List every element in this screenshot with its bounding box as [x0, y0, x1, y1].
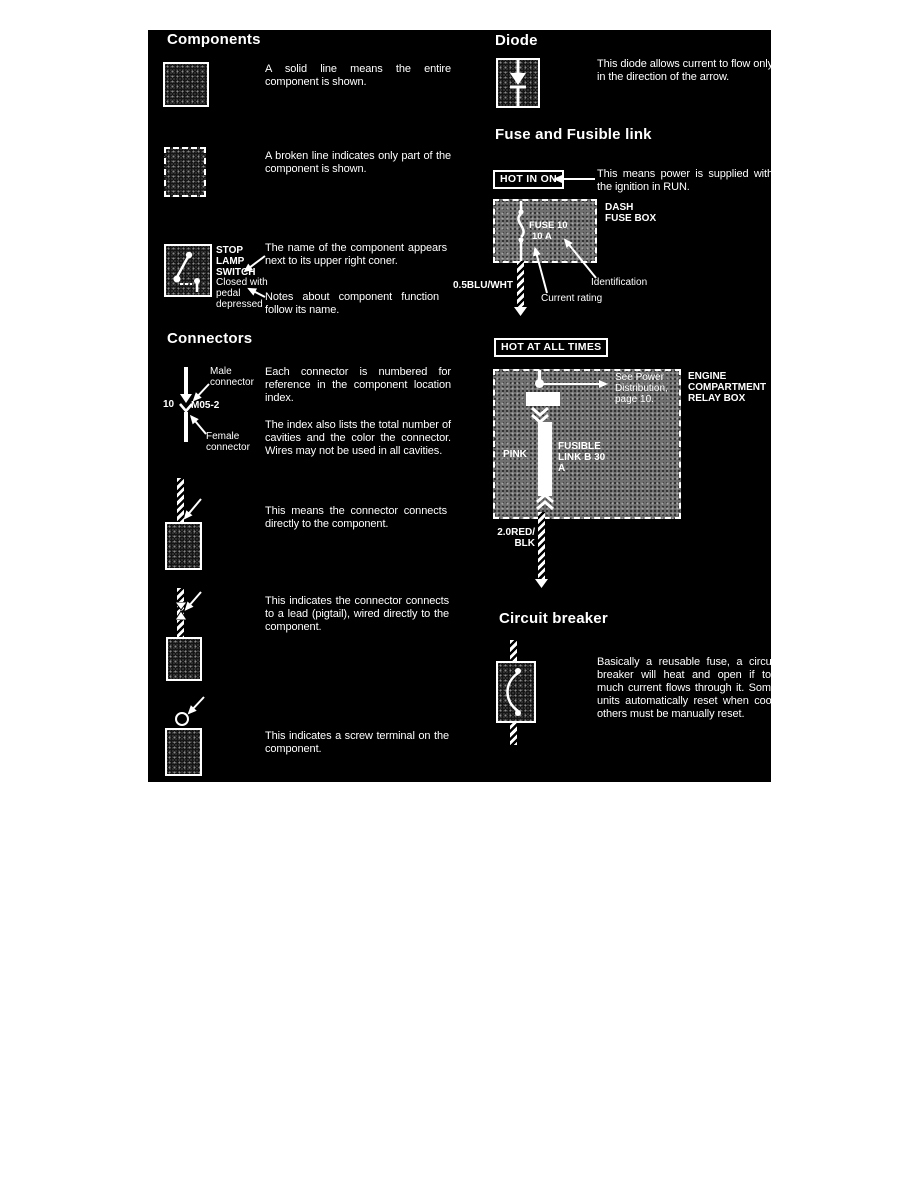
pink-label: PINK: [503, 449, 527, 460]
see-power-arrow: [542, 380, 606, 388]
fusible-link-label: FUSIBLE LINK B 30 A: [558, 441, 610, 474]
circuit-breaker-icon: [498, 663, 534, 721]
diode-heading: Diode: [495, 32, 538, 49]
fuse-rating-label: 10 A: [532, 231, 552, 242]
connector-index-text: The index also lists the total number of…: [265, 419, 451, 458]
wire-color-line1: 2.0RED/: [497, 527, 535, 538]
diode-text: This diode allows current to flow only i…: [597, 58, 771, 84]
switch-icon: [166, 246, 210, 295]
component-box: [165, 728, 202, 776]
circuit-breaker-box: [496, 661, 536, 723]
screw-terminal-icon: [175, 712, 189, 726]
hot-in-on-text: This means power is supplied with the ig…: [597, 168, 771, 194]
diode-box: [496, 58, 540, 108]
hatched-wire: [538, 512, 545, 580]
cavity-count-label: 10: [163, 399, 174, 410]
wire-end-arrow: [535, 579, 548, 588]
wiring-legend-page: Components A solid line means the entire…: [148, 30, 771, 782]
dash-fuse-box-label: DASH FUSE BOX: [605, 202, 657, 224]
hatched-wire: [517, 261, 524, 308]
diode-icon: [498, 60, 538, 106]
wire-color-line2: BLK: [514, 538, 535, 549]
circuit-breaker-heading: Circuit breaker: [499, 610, 608, 627]
fusible-link-bar: [538, 422, 552, 496]
female-connector-label: Female connector: [206, 431, 270, 453]
solid-line-text: A solid line means the entire component …: [265, 63, 451, 89]
hot-in-on-arrow: [555, 175, 595, 183]
fuse-wire-color-label: 0.5BLU/WHT: [453, 280, 513, 291]
connector-pigtail-text: This indicates the connector connects to…: [265, 595, 449, 634]
connectors-heading: Connectors: [167, 330, 252, 347]
screw-pointer-arrow: [186, 694, 207, 716]
screw-terminal-text: This indicates a screw terminal on the c…: [265, 730, 449, 756]
wire-end-arrow: [514, 307, 527, 316]
fuse-id-label: FUSE 10: [529, 220, 568, 231]
pigtail-pointer-arrow: [183, 589, 204, 612]
direct-pointer-arrow: [182, 496, 204, 520]
component-box: [165, 522, 202, 570]
see-power-text: See Power Distribution, page 10.: [615, 372, 679, 405]
relay-connector-rect: [526, 392, 560, 406]
identification-label: Identification: [591, 277, 647, 288]
fuse-heading: Fuse and Fusible link: [495, 126, 652, 143]
fuse-icon: [510, 201, 532, 261]
solid-component-box-icon: [163, 62, 209, 107]
component-name-text: The name of the component appears next t…: [265, 242, 447, 268]
component-box: [166, 637, 202, 681]
connector-id-label: M05-2: [191, 400, 219, 411]
current-rating-label: Current rating: [541, 293, 602, 304]
connector-direct-text: This means the connector connects direct…: [265, 505, 447, 531]
dashed-component-box-icon: [164, 147, 206, 197]
double-chevron-down-icon: [531, 407, 549, 422]
double-chevron-up-icon: [536, 494, 554, 510]
broken-line-text: A broken line indicates only part of the…: [265, 150, 451, 176]
hot-at-all-times-badge: HOT AT ALL TIMES: [494, 338, 608, 357]
components-heading: Components: [167, 31, 261, 48]
component-notes-text: Notes about component function follow it…: [265, 291, 439, 317]
circuit-breaker-text: Basically a reusable fuse, a circuit bre…: [597, 656, 771, 721]
stop-lamp-switch-box: [164, 244, 212, 297]
connector-numbered-text: Each connector is numbered for reference…: [265, 366, 451, 405]
relay-box-label: ENGINE COMPARTMENT RELAY BOX: [688, 371, 771, 404]
relay-wire-color-label: 2.0RED/ BLK: [491, 527, 535, 549]
connector-wire-top: [184, 367, 188, 395]
